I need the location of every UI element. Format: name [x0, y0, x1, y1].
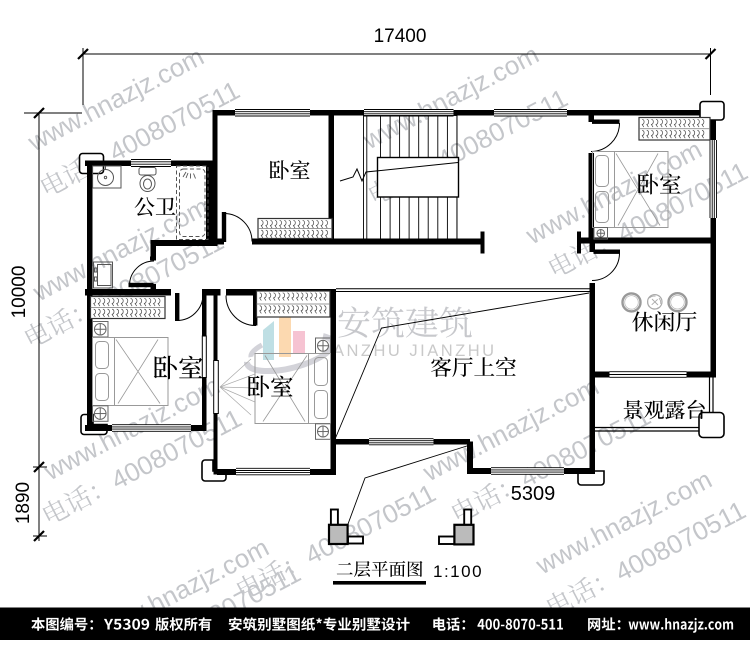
svg-text:1890: 1890: [13, 482, 34, 524]
svg-text:ANZHU JIANZHU: ANZHU JIANZHU: [333, 342, 497, 360]
svg-text:10000: 10000: [9, 266, 30, 319]
svg-text:17400: 17400: [374, 26, 427, 47]
svg-text:1:100: 1:100: [433, 562, 483, 581]
svg-text:5309: 5309: [511, 483, 556, 505]
